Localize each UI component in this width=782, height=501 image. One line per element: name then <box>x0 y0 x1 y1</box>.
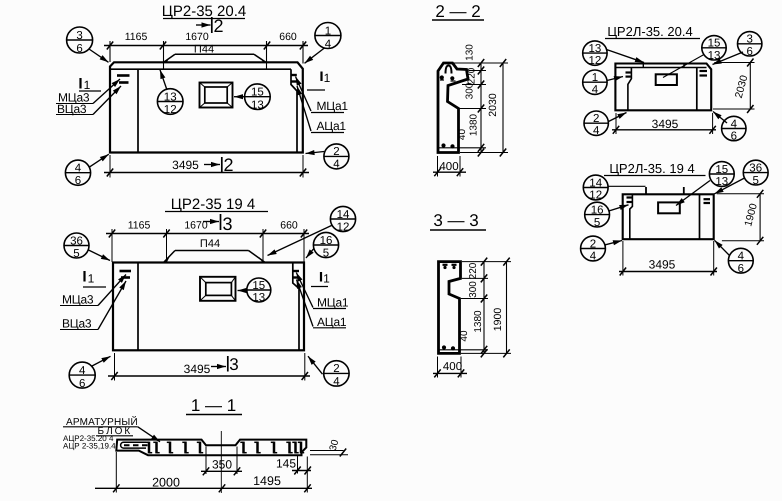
svg-text:1165: 1165 <box>128 220 151 232</box>
svg-text:36: 36 <box>70 235 83 247</box>
svg-text:12: 12 <box>589 190 602 202</box>
svg-text:6: 6 <box>79 378 85 390</box>
svg-text:12: 12 <box>337 221 350 233</box>
svg-text:3 — 3: 3 — 3 <box>433 211 478 230</box>
svg-text:12: 12 <box>164 104 177 116</box>
svg-text:2: 2 <box>590 238 596 250</box>
svg-text:3495: 3495 <box>652 117 679 131</box>
svg-text:13: 13 <box>589 43 602 55</box>
svg-text:660: 660 <box>279 31 297 43</box>
svg-text:2 — 2: 2 — 2 <box>435 2 480 21</box>
svg-text:13: 13 <box>251 99 264 111</box>
svg-text:2: 2 <box>333 363 339 375</box>
svg-text:6: 6 <box>746 46 752 58</box>
svg-text:15: 15 <box>252 280 265 292</box>
svg-text:3495: 3495 <box>184 362 211 376</box>
svg-text:15: 15 <box>708 38 721 50</box>
svg-text:36: 36 <box>749 162 762 174</box>
svg-text:660: 660 <box>280 220 298 232</box>
svg-text:ВЦа3: ВЦа3 <box>62 317 92 331</box>
svg-text:ВЦа3: ВЦа3 <box>57 102 87 116</box>
svg-text:ЦР2-35 19 4: ЦР2-35 19 4 <box>171 196 256 213</box>
svg-text:ЦР2-35 20.4: ЦР2-35 20.4 <box>162 3 247 20</box>
svg-text:ЦР2Л-35. 20.4: ЦР2Л-35. 20.4 <box>607 24 692 39</box>
svg-text:6: 6 <box>731 131 737 143</box>
svg-text:1 — 1: 1 — 1 <box>191 396 236 415</box>
svg-text:1: 1 <box>325 25 331 37</box>
svg-text:3: 3 <box>229 355 238 374</box>
svg-text:6: 6 <box>76 43 82 55</box>
svg-text:40: 40 <box>457 129 468 141</box>
svg-text:3495: 3495 <box>649 258 676 272</box>
svg-text:АЦа1: АЦа1 <box>317 119 347 133</box>
svg-text:1670: 1670 <box>184 220 208 232</box>
svg-text:2: 2 <box>333 146 339 158</box>
svg-text:3: 3 <box>746 34 752 46</box>
svg-text:МЦа1: МЦа1 <box>317 99 349 113</box>
svg-text:4: 4 <box>590 251 597 263</box>
svg-text:2: 2 <box>213 16 223 36</box>
svg-text:220: 220 <box>467 67 478 84</box>
svg-text:1380: 1380 <box>469 113 480 136</box>
svg-text:16: 16 <box>591 204 604 216</box>
svg-text:1: 1 <box>323 272 330 286</box>
svg-text:ЦР2Л-35. 19 4: ЦР2Л-35. 19 4 <box>609 161 694 176</box>
svg-text:1165: 1165 <box>125 31 148 43</box>
svg-text:АЦР 2-35,19.4: АЦР 2-35,19.4 <box>63 441 116 450</box>
svg-text:МЦа3: МЦа3 <box>62 293 94 307</box>
svg-text:5: 5 <box>323 247 329 259</box>
svg-text:6: 6 <box>738 263 744 275</box>
svg-text:АЦа1: АЦа1 <box>317 315 347 329</box>
svg-text:5: 5 <box>73 248 79 260</box>
svg-text:5: 5 <box>752 175 758 187</box>
svg-text:13: 13 <box>164 91 177 103</box>
svg-text:12: 12 <box>589 55 602 67</box>
svg-text:1900: 1900 <box>492 308 504 332</box>
svg-text:5: 5 <box>594 217 600 229</box>
svg-text:1: 1 <box>324 71 331 85</box>
svg-text:13: 13 <box>252 292 265 304</box>
svg-text:13: 13 <box>715 176 728 188</box>
svg-text:2: 2 <box>593 113 599 125</box>
svg-text:4: 4 <box>333 376 340 388</box>
svg-text:4: 4 <box>75 163 82 175</box>
svg-text:1380: 1380 <box>473 310 484 333</box>
svg-text:1: 1 <box>592 72 598 84</box>
svg-text:130: 130 <box>465 44 476 61</box>
svg-text:40: 40 <box>459 330 470 342</box>
svg-text:2000: 2000 <box>152 476 180 490</box>
svg-text:15: 15 <box>715 164 728 176</box>
svg-text:1670: 1670 <box>185 31 209 43</box>
svg-text:1: 1 <box>88 272 95 286</box>
svg-text:400: 400 <box>443 361 462 373</box>
svg-text:2030: 2030 <box>487 93 499 117</box>
svg-text:6: 6 <box>75 175 81 187</box>
svg-text:15: 15 <box>251 87 264 99</box>
svg-text:4: 4 <box>731 118 738 130</box>
svg-text:4: 4 <box>325 38 332 50</box>
svg-text:16: 16 <box>320 235 333 247</box>
svg-text:4: 4 <box>593 125 600 137</box>
svg-text:300: 300 <box>465 82 476 99</box>
svg-text:1495: 1495 <box>253 474 281 488</box>
svg-text:14: 14 <box>337 209 350 221</box>
svg-text:4: 4 <box>333 159 340 171</box>
svg-text:3: 3 <box>76 30 82 42</box>
svg-text:2: 2 <box>223 155 233 175</box>
svg-text:МЦа1: МЦа1 <box>317 296 349 310</box>
svg-text:350: 350 <box>212 457 232 471</box>
svg-text:300: 300 <box>468 281 479 298</box>
svg-text:3: 3 <box>222 214 232 234</box>
svg-text:4: 4 <box>738 251 745 263</box>
svg-text:3495: 3495 <box>172 158 199 172</box>
svg-text:14: 14 <box>589 177 602 189</box>
svg-text:4: 4 <box>592 84 599 96</box>
svg-text:П44: П44 <box>200 238 220 250</box>
svg-text:145: 145 <box>276 457 296 471</box>
svg-text:220: 220 <box>468 262 479 279</box>
svg-text:4: 4 <box>79 365 86 377</box>
svg-text:400: 400 <box>439 161 458 173</box>
